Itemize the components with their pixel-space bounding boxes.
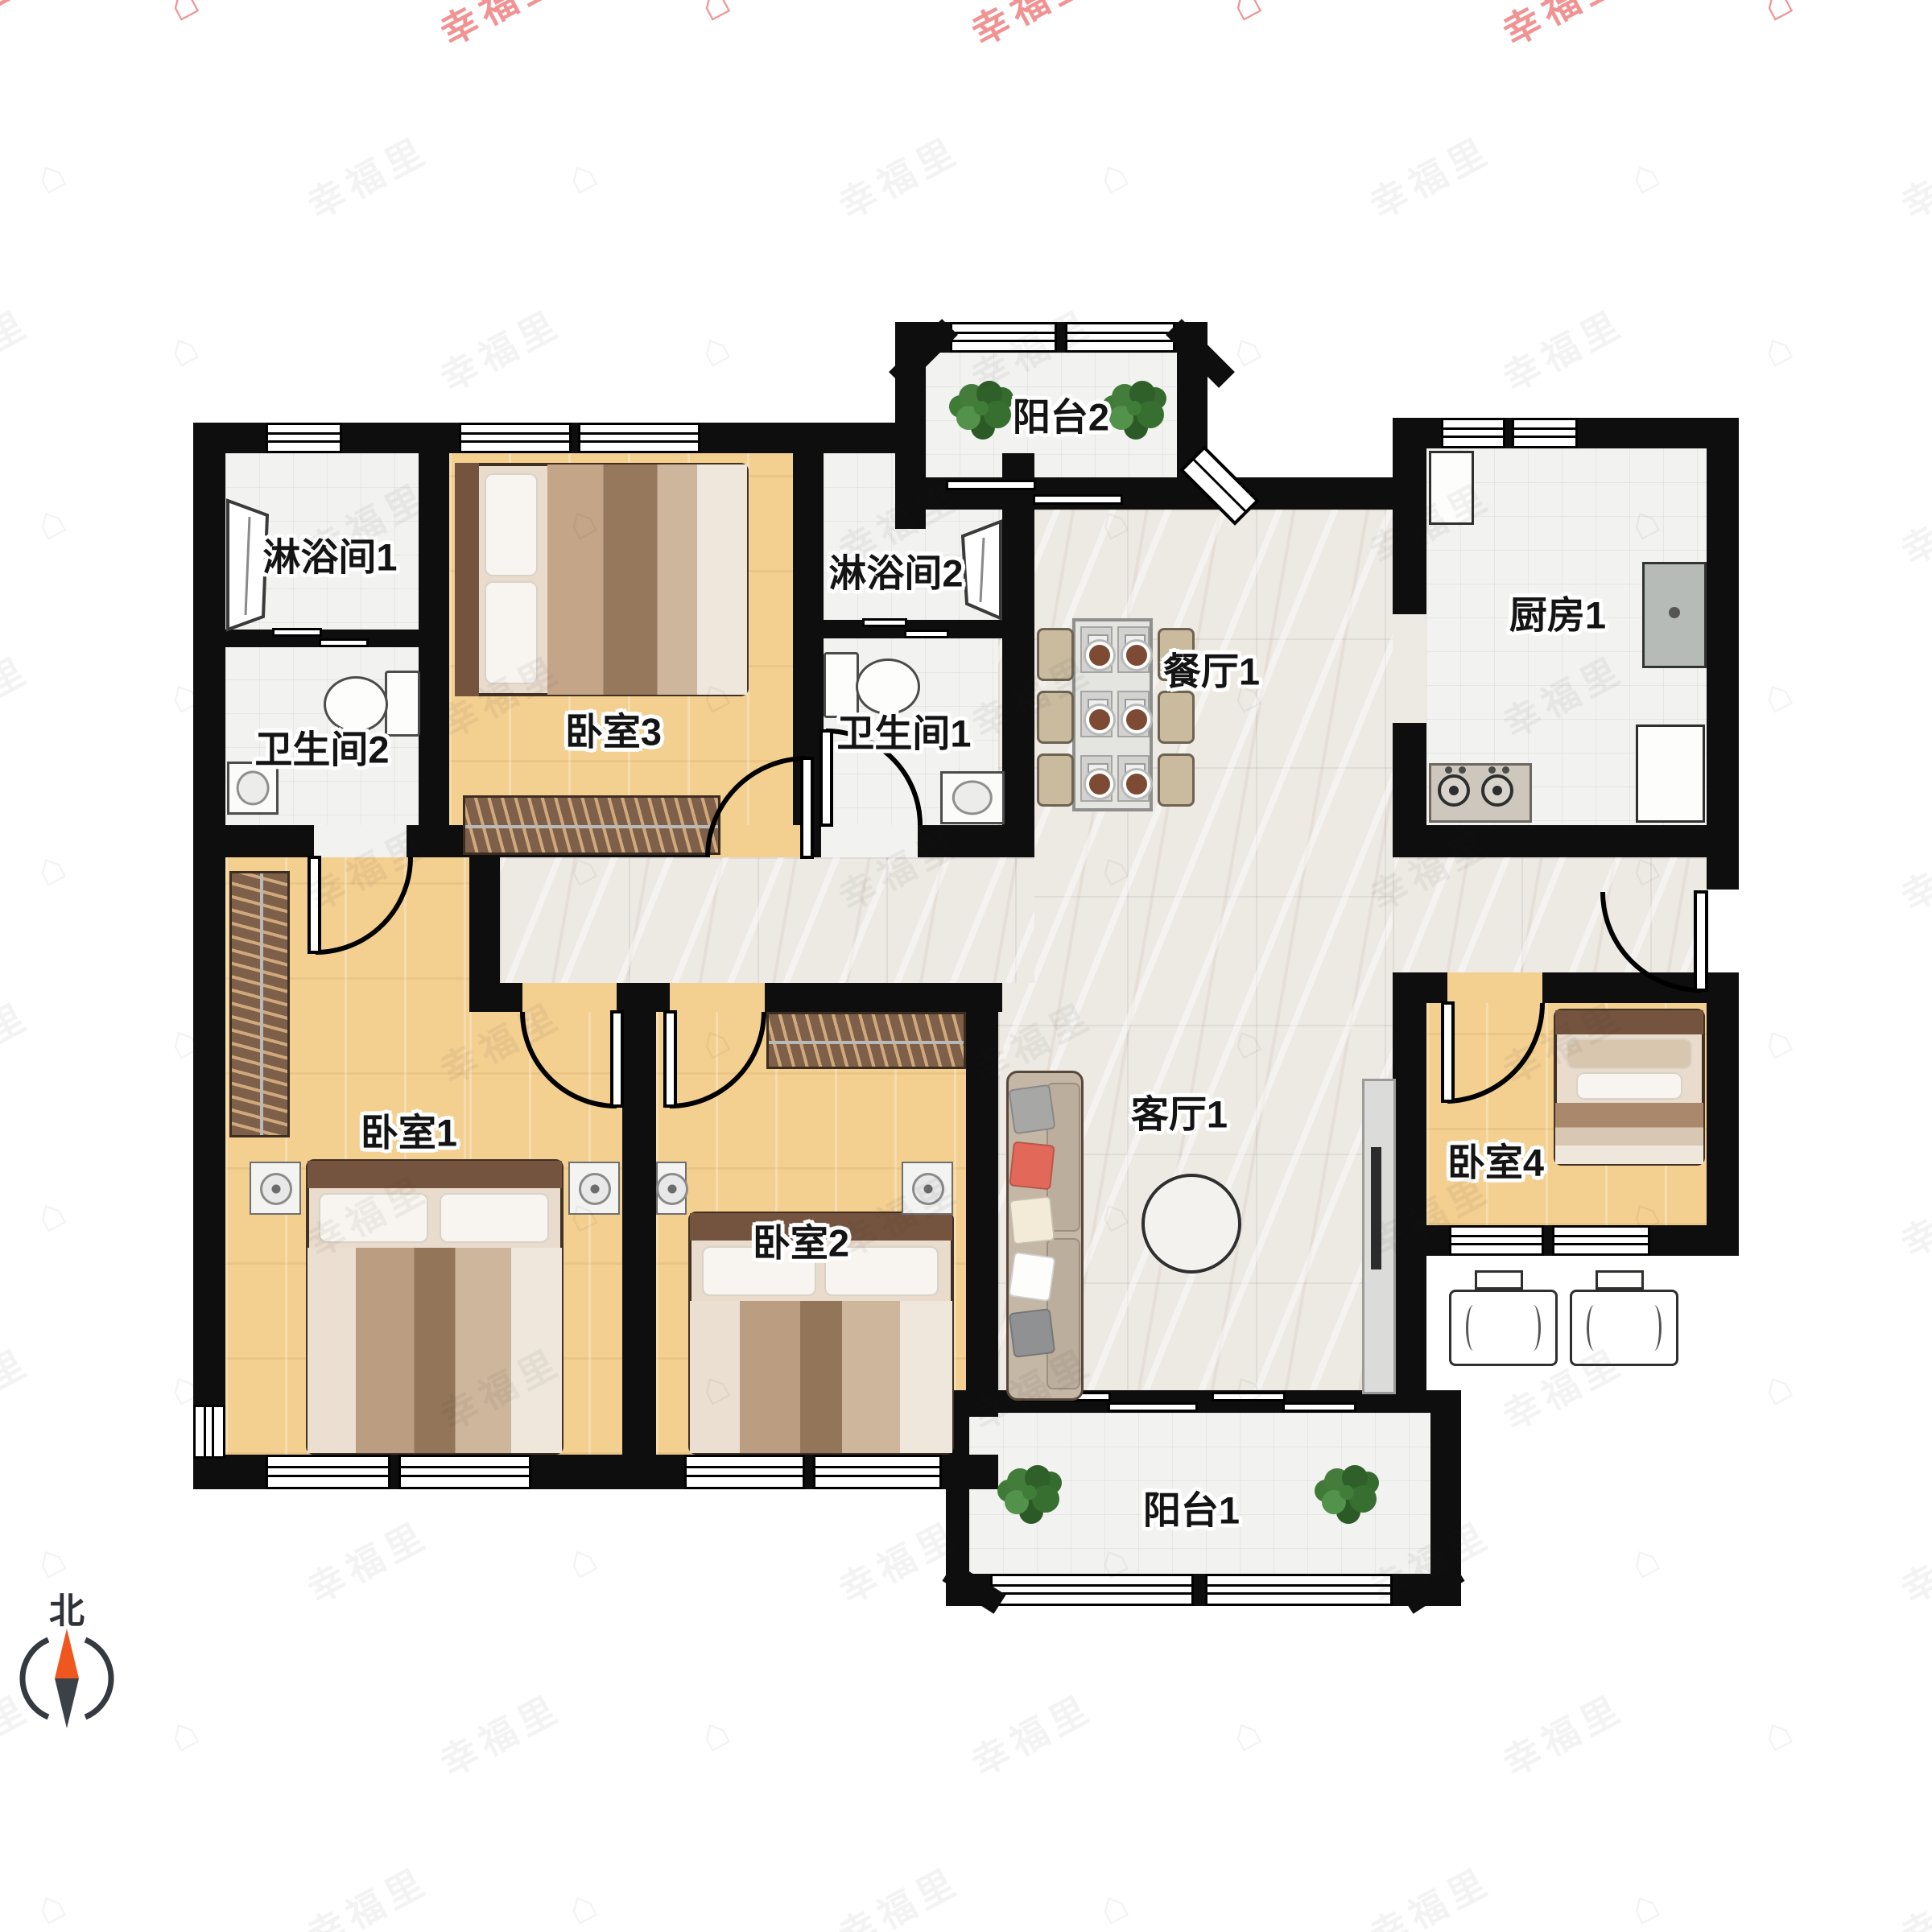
wall [469,857,500,983]
placemat [1080,691,1113,737]
window [193,1405,225,1459]
dining-chair [1037,753,1074,807]
sliding-door [946,480,1036,490]
window [266,423,342,453]
bed-blanket [690,1301,952,1453]
placemat [1080,626,1113,673]
door-opening-bedroom2 [670,983,765,1012]
window [1512,418,1578,448]
sliding-door [1282,1402,1356,1412]
room-label-shower-2: 淋浴间2 [828,543,963,598]
sofa-pillow [1009,1195,1055,1245]
sliding-door [904,630,949,638]
bed-pillow [485,581,538,684]
floor-plan [0,0,1932,1932]
nightstand [568,1162,620,1215]
sofa-pillow [1009,1141,1055,1190]
window [1449,1225,1544,1256]
wardrobe-bedroom3 [463,795,720,855]
air-conditioner-unit [1570,1290,1678,1366]
placemat [1080,755,1113,802]
room-label-living-1: 客厅1 [1131,1084,1228,1139]
window [1552,1225,1650,1256]
floor-hallway [500,857,1034,983]
compass-rose [14,1622,119,1759]
plant [1127,401,1141,415]
dining-chair [1037,628,1074,681]
compass-needle-north [55,1629,79,1678]
window [950,322,1057,353]
wall [419,453,449,857]
bed-pillow [1576,1072,1682,1100]
bed-blanket [1555,1103,1703,1164]
bed-blanket [547,464,747,695]
nightstand [250,1162,301,1215]
room-label-toilet-2: 卫生间2 [254,719,389,774]
stove-burner [1438,774,1470,807]
room-label-bedroom-3: 卧室3 [565,701,662,757]
plant [974,401,989,415]
sofa-pillow [1009,1308,1055,1358]
stove-knob [1502,766,1509,774]
window [1205,1574,1393,1606]
window [684,1455,805,1489]
wall [1707,418,1739,857]
nightstand [902,1162,953,1215]
wall [622,983,656,1489]
floor-plan-canvas: 淋浴间1 卫生间2 卧室3 淋浴间2 卫生间1 阳台2 餐厅1 厨房1 卧室1 … [0,0,1932,1932]
dining-chair [1037,691,1074,744]
window [1441,418,1505,448]
dining-chair [1158,753,1195,807]
wardrobe-bedroom1 [229,871,290,1137]
plant [1022,1485,1037,1500]
window [266,1455,390,1489]
ac-bracket [1475,1270,1523,1290]
window [990,1574,1194,1606]
room-label-balcony-2: 阳台2 [1013,386,1109,442]
window [398,1455,531,1489]
window [459,423,572,453]
door-opening-bedroom1 [522,983,617,1012]
door-opening-kitchen [1393,614,1426,723]
kitchen-sink [1642,562,1707,668]
stove-knob [1459,766,1466,774]
sliding-door [862,618,907,627]
sliding-door [272,628,322,637]
door-opening-bedroom3 [708,825,811,857]
fridge [1429,451,1474,525]
door-opening-toilet1 [821,825,918,857]
round-tea-table [1141,1174,1241,1274]
compass-arc-left [23,1640,48,1717]
toilet-toilet2 [385,671,420,737]
bed-blanket [308,1248,562,1453]
bed-pillow [319,1193,428,1243]
compass: 北 [14,1582,119,1759]
room-label-bedroom-4: 卧室4 [1447,1132,1544,1187]
wall [895,322,926,529]
door-opening-entry [1707,890,1739,972]
floor-entry-hall [1393,857,1707,972]
plant [1340,1485,1354,1500]
sliding-door [1108,1402,1198,1412]
wall [193,423,225,1489]
wall [1393,825,1739,857]
window [813,1455,942,1489]
room-label-kitchen-1: 厨房1 [1509,584,1606,640]
wall [1393,972,1739,1003]
room-label-bedroom-2: 卧室2 [753,1212,849,1268]
wall [1177,322,1207,483]
stove-knob [1488,766,1496,774]
room-label-dining-1: 餐厅1 [1163,641,1260,696]
bed-pillow [440,1193,549,1243]
wardrobe-bedroom2 [766,1012,966,1069]
sofa-pillow [1008,1252,1055,1302]
sliding-door [1212,1392,1286,1402]
wall [1393,972,1426,1413]
compass-needle-south [55,1678,79,1728]
door-opening-toilet2 [314,825,407,857]
sliding-door [319,638,369,647]
door-opening-bedroom4 [1447,972,1542,1003]
bed-pillow [485,473,538,576]
wash-basin [940,771,1005,824]
wall [966,983,998,1417]
bed-headboard [455,463,479,696]
ac-bracket [1596,1270,1644,1290]
kitchen-cabinet [1636,724,1705,823]
sofa-pillow [1008,1084,1055,1135]
stove-burner [1481,774,1513,807]
tv-screen [1371,1147,1381,1269]
window [1065,322,1175,353]
compass-arc-right [85,1640,111,1717]
room-label-toilet-1: 卫生间1 [836,703,971,758]
room-label-shower-1: 淋浴间1 [262,526,397,582]
sliding-door [1033,494,1123,505]
bed-pillow [1567,1038,1692,1069]
stove-knob [1445,766,1452,774]
bed-headboard [1555,1010,1703,1034]
placemat [1117,626,1150,673]
placemat [1117,691,1150,737]
wall [1002,453,1034,857]
air-conditioner-unit [1449,1290,1558,1366]
dining-chair [1158,691,1195,744]
wall [793,453,824,857]
room-label-balcony-1: 阳台1 [1143,1480,1240,1535]
nightstand [656,1162,687,1215]
placemat [1117,755,1150,802]
bed-headboard [308,1161,562,1188]
room-label-bedroom-1: 卧室1 [361,1102,457,1158]
window [578,423,700,453]
